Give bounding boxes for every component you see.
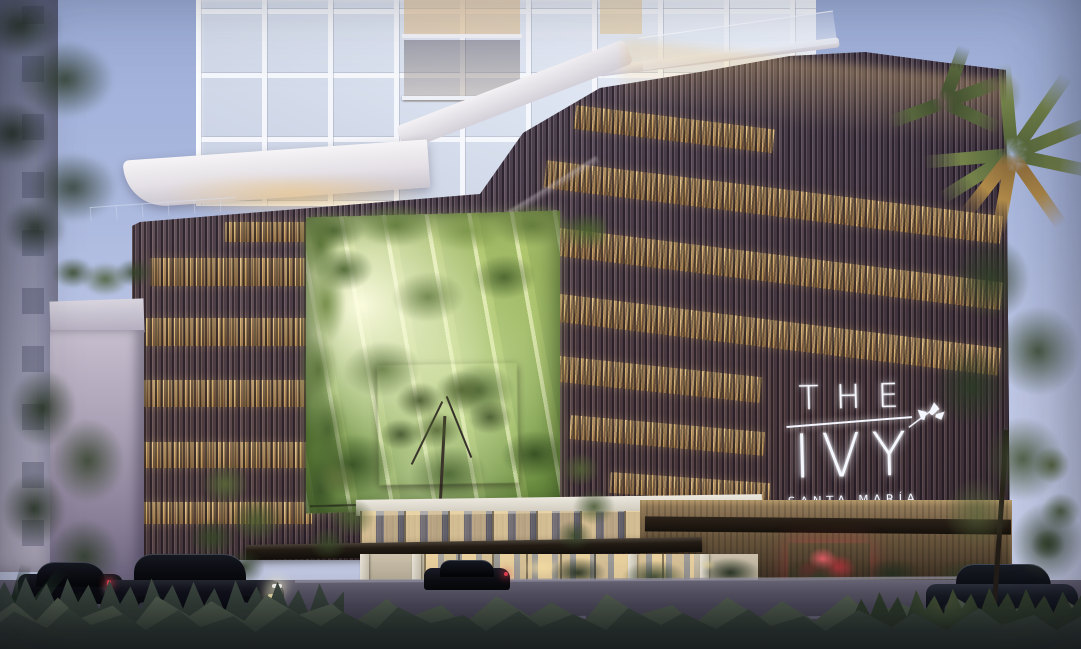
car-in-driveway <box>424 560 510 590</box>
architectural-rendering: THE IVY SANTA MARÍA GOLF & COUNTRY CLUB <box>0 0 1081 649</box>
car-taillight <box>504 572 508 576</box>
large-street-tree <box>905 225 1081 585</box>
street-tree <box>295 446 390 576</box>
tree-canopy <box>377 363 519 485</box>
landscape-uplight <box>700 560 716 570</box>
street-tree <box>540 438 630 563</box>
car-cabin <box>440 560 494 577</box>
lit-apartment-window <box>600 0 642 34</box>
lit-apartment-window <box>404 0 520 36</box>
balcony-railing <box>402 34 522 38</box>
